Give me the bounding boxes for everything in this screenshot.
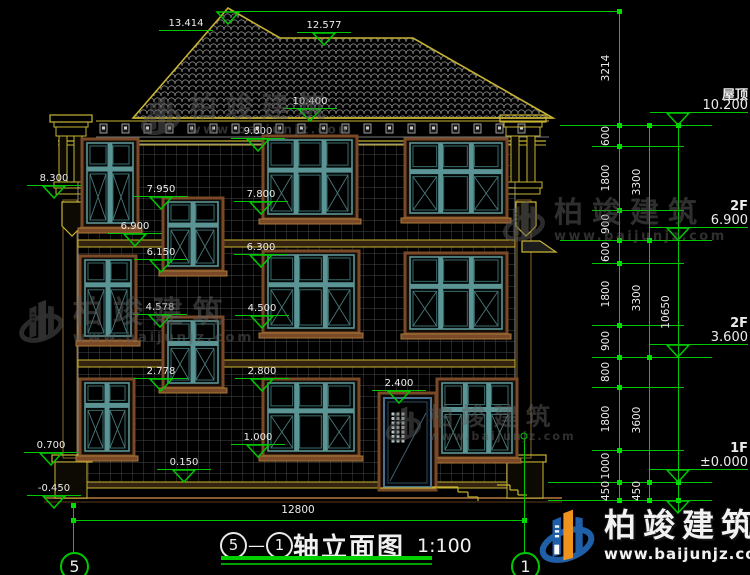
dimension-label: 3300 [631, 169, 643, 196]
overall-dimension-line [73, 520, 524, 521]
dimension-label: 600 [600, 126, 612, 146]
dimension-label: 3600 [631, 407, 643, 434]
extension-line [592, 357, 712, 358]
elevation-marker: -0.450 [6, 483, 102, 509]
elevation-marker: 12.577 [276, 20, 372, 46]
elevation-triangle-icon [148, 378, 174, 392]
dimension-tick [617, 323, 622, 328]
dimension-label: 450 [600, 481, 612, 501]
watermark-logo-icon [138, 90, 184, 139]
dimension-tick [617, 448, 622, 453]
title-axis-bubble-left: 5 [220, 532, 247, 559]
dimension-tick [617, 123, 622, 128]
watermark-logo-icon [16, 293, 66, 348]
cad-elevation-viewport: 13.41412.57710.4009.6008.3007.9507.8006.… [0, 0, 750, 575]
title-scale: 1:100 [417, 535, 472, 557]
watermark-text: 柏竣建筑 [429, 403, 576, 429]
elevation-marker: 6.150 [113, 247, 209, 273]
level-triangle-icon [665, 344, 691, 358]
dimension-tick [617, 144, 622, 149]
watermark-url: www.baijunjz.com [429, 430, 576, 443]
elevation-value: 2.778 [147, 366, 176, 377]
dimension-tick [617, 261, 622, 266]
watermark: 柏竣建筑www.baijunjz.com [383, 401, 576, 445]
watermark-url: www.baijunjz.com [73, 329, 254, 345]
dimension-label: 900 [600, 331, 612, 351]
elevation-value: 6.900 [121, 221, 150, 232]
elevation-triangle-icon [249, 378, 275, 392]
watermark-logo-icon [500, 194, 548, 246]
dimension-chain-line [619, 11, 620, 500]
dimension-tick [647, 480, 652, 485]
brand-name: 柏竣建筑 [604, 508, 750, 542]
elevation-marker: 2.778 [113, 366, 209, 392]
roof-apex-triangle-icon [215, 11, 241, 25]
elevation-marker: 6.300 [213, 242, 309, 268]
watermark-text: 柏竣建筑 [554, 197, 727, 227]
level-triangle-icon [665, 469, 691, 483]
elevation-triangle-icon [148, 259, 174, 273]
elevation-value: 6.300 [247, 242, 276, 253]
watermark-text: 柏竣建筑 [189, 92, 353, 121]
dimension-label: 1800 [600, 165, 612, 192]
dimension-tick [617, 355, 622, 360]
axis-tick [71, 503, 76, 508]
level-value: ±0.000 [648, 455, 748, 470]
elevation-triangle-icon [311, 32, 337, 46]
elevation-marker: 0.700 [3, 440, 99, 466]
elevation-triangle-icon [248, 254, 274, 268]
dimension-tick [617, 9, 622, 14]
elevation-marker: 0.150 [136, 457, 232, 483]
elevation-marker: 1.000 [210, 432, 306, 458]
elevation-value: 7.800 [247, 189, 276, 200]
elevation-value: 2.800 [248, 366, 277, 377]
elevation-value: 0.150 [170, 457, 199, 468]
elevation-marker: 2.800 [214, 366, 310, 392]
elevation-value: 12.577 [307, 20, 342, 31]
watermark: 柏竣建筑www.baijunjz.com [16, 293, 254, 348]
elevation-triangle-icon [245, 138, 271, 152]
dimension-tick [647, 355, 652, 360]
dimension-label: 1800 [600, 406, 612, 433]
elevation-marker: 7.800 [213, 189, 309, 215]
level-value: 10.200 [648, 98, 748, 113]
watermark-logo-icon [383, 401, 424, 445]
elevation-triangle-icon [41, 185, 67, 199]
brand-building-icon [538, 500, 596, 570]
dimension-label: 450 [631, 481, 643, 501]
elevation-value: 8.300 [40, 173, 69, 184]
dimension-tick [647, 123, 652, 128]
watermark-url: www.baijunjz.com [554, 229, 727, 244]
level-triangle-icon [665, 112, 691, 126]
extension-line [592, 387, 684, 388]
overall-dimension-label: 12800 [263, 504, 333, 516]
elevation-triangle-icon [248, 201, 274, 215]
brand-url: www.baijunjz.com [604, 545, 750, 563]
dimension-label: 3300 [631, 285, 643, 312]
elevation-triangle-icon [41, 495, 67, 509]
elevation-value: 7.950 [147, 184, 176, 195]
extension-line [592, 146, 684, 147]
brand-logo: 柏竣建筑 www.baijunjz.com [538, 500, 750, 570]
axis-bubble-1: 1 [511, 552, 540, 575]
title-underline-thin [221, 563, 432, 565]
dimension-label: 1000 [600, 453, 612, 480]
extension-line [233, 11, 622, 12]
watermark: 柏竣建筑www.baijunjz.com [138, 90, 353, 139]
elevation-value: 1.000 [244, 432, 273, 443]
elevation-value: 0.700 [37, 440, 66, 451]
elevation-triangle-icon [38, 452, 64, 466]
elevation-marker: 7.950 [113, 184, 209, 210]
elevation-triangle-icon [148, 196, 174, 210]
level-name: 1F [648, 441, 748, 456]
title-underline-thick [221, 556, 432, 560]
dimension-label: 3214 [600, 55, 612, 82]
watermark: 柏竣建筑www.baijunjz.com [500, 194, 727, 246]
dimension-tick [617, 480, 622, 485]
dimension-label: 1800 [600, 281, 612, 308]
dimension-label: 800 [600, 362, 612, 382]
dimension-tick [617, 385, 622, 390]
elevation-value: -0.450 [38, 483, 70, 494]
watermark-url: www.baijunjz.com [189, 123, 353, 137]
axis-bubble-5: 5 [60, 552, 89, 575]
extension-line [592, 263, 684, 264]
annotation-layer: 13.41412.57710.4009.6008.3007.9507.8006.… [0, 0, 750, 575]
elevation-triangle-icon [171, 469, 197, 483]
elevation-marker: 8.300 [6, 173, 102, 199]
elevation-triangle-icon [122, 233, 148, 247]
title-axis-bubble-right: 1 [266, 532, 293, 559]
axis-line-1 [524, 439, 525, 553]
level-value: 3.600 [648, 330, 748, 345]
elevation-value: 6.150 [147, 247, 176, 258]
axis-line-5 [73, 503, 74, 553]
watermark-text: 柏竣建筑 [73, 296, 254, 328]
elevation-marker: 6.900 [87, 221, 183, 247]
title-dash: — [248, 536, 265, 556]
level-name: 2F [648, 316, 748, 331]
elevation-value: 2.400 [385, 378, 414, 389]
elevation-triangle-icon [245, 444, 271, 458]
elevation-value: 13.414 [169, 18, 204, 29]
